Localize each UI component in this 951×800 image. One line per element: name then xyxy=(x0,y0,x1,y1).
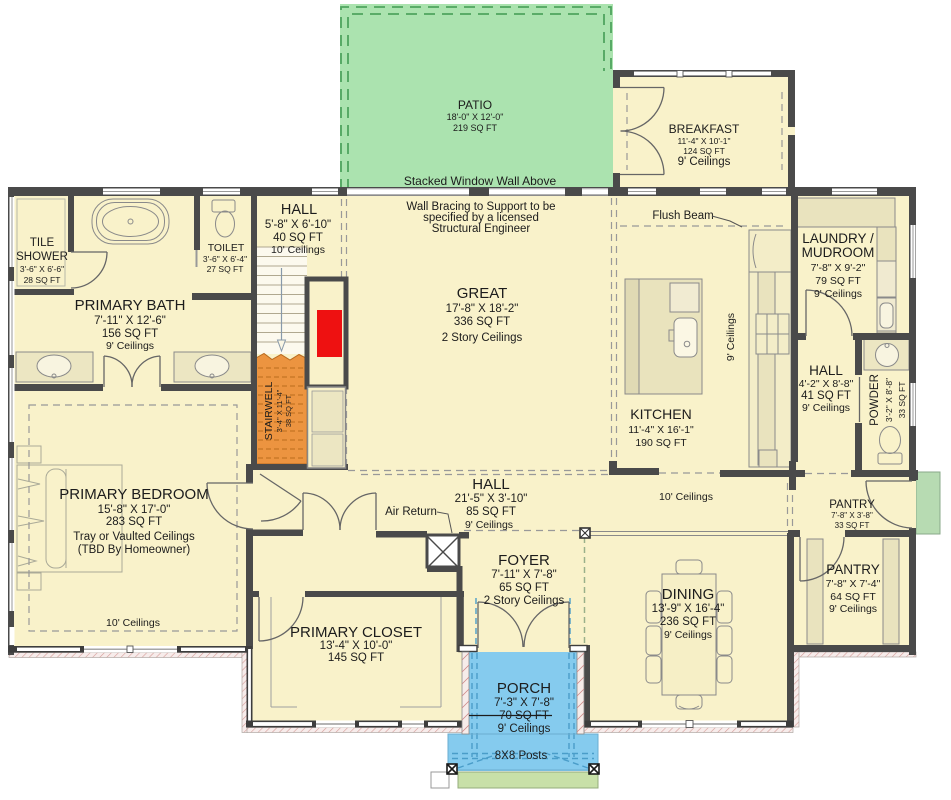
svg-text:HALL: HALL xyxy=(281,202,317,218)
svg-text:4'-2" X 8'-8": 4'-2" X 8'-8" xyxy=(799,378,854,390)
svg-text:KITCHEN: KITCHEN xyxy=(630,406,691,422)
svg-text:7'-3" X 7'-8": 7'-3" X 7'-8" xyxy=(494,697,554,709)
svg-text:21'-5" X 3'-10": 21'-5" X 3'-10" xyxy=(455,493,528,505)
svg-text:65 SQ FT: 65 SQ FT xyxy=(499,582,549,594)
svg-text:190 SQ FT: 190 SQ FT xyxy=(635,437,687,449)
svg-text:HALL: HALL xyxy=(809,363,843,378)
svg-text:DINING: DINING xyxy=(662,586,715,603)
svg-text:7'-8" X 9'-2": 7'-8" X 9'-2" xyxy=(811,262,866,274)
svg-text:3'-6" X 6'-6": 3'-6" X 6'-6" xyxy=(20,264,64,274)
svg-text:SHOWER: SHOWER xyxy=(16,251,68,263)
svg-text:28 SQ FT: 28 SQ FT xyxy=(24,275,61,285)
svg-text:3'-6" X 6'-4": 3'-6" X 6'-4" xyxy=(203,254,247,264)
svg-text:17'-8" X 18'-2": 17'-8" X 18'-2" xyxy=(446,303,519,315)
svg-text:GREAT: GREAT xyxy=(457,285,508,302)
svg-text:3'-4" X 11'-4": 3'-4" X 11'-4" xyxy=(275,389,284,432)
svg-text:POWDER: POWDER xyxy=(869,374,881,426)
svg-text:9' Ceilings: 9' Ceilings xyxy=(814,288,862,300)
svg-text:9' Ceilings: 9' Ceilings xyxy=(465,519,513,531)
svg-text:27 SQ FT: 27 SQ FT xyxy=(207,264,244,274)
svg-text:9' Ceilings: 9' Ceilings xyxy=(829,603,877,615)
svg-text:7'-8" X 7'-4": 7'-8" X 7'-4" xyxy=(826,578,881,590)
svg-text:PRIMARY BEDROOM: PRIMARY BEDROOM xyxy=(59,486,208,503)
svg-text:11'-4" X 16'-1": 11'-4" X 16'-1" xyxy=(628,424,694,436)
svg-text:10' Ceilings: 10' Ceilings xyxy=(271,244,325,256)
svg-text:33 SQ FT: 33 SQ FT xyxy=(835,521,870,530)
svg-text:7'-8" X 3'-8": 7'-8" X 3'-8" xyxy=(831,511,873,520)
svg-text:PANTRY: PANTRY xyxy=(829,499,875,511)
svg-text:40 SQ FT: 40 SQ FT xyxy=(273,232,323,244)
svg-text:PORCH: PORCH xyxy=(497,680,551,697)
svg-text:156 SQ FT: 156 SQ FT xyxy=(102,328,158,340)
svg-text:5'-8" X 6'-10": 5'-8" X 6'-10" xyxy=(265,219,331,231)
svg-text:9' Ceilings: 9' Ceilings xyxy=(725,313,737,361)
svg-text:41 SQ FT: 41 SQ FT xyxy=(801,390,851,402)
svg-text:10' Ceilings: 10' Ceilings xyxy=(106,617,160,629)
svg-text:FOYER: FOYER xyxy=(498,552,550,569)
svg-text:283 SQ FT: 283 SQ FT xyxy=(106,516,162,528)
svg-text:PRIMARY CLOSET: PRIMARY CLOSET xyxy=(290,624,422,641)
svg-text:2 Story Ceilings: 2 Story Ceilings xyxy=(442,332,523,344)
svg-text:MUDROOM: MUDROOM xyxy=(802,245,875,260)
svg-text:9' Ceilings: 9' Ceilings xyxy=(106,340,154,352)
svg-text:LAUNDRY /: LAUNDRY / xyxy=(802,231,874,246)
svg-text:145 SQ FT: 145 SQ FT xyxy=(328,652,384,664)
svg-text:38 SQ FT: 38 SQ FT xyxy=(284,394,293,427)
svg-text:124 SQ FT: 124 SQ FT xyxy=(683,146,725,156)
svg-text:236 SQ FT: 236 SQ FT xyxy=(660,616,716,628)
svg-text:TILE: TILE xyxy=(30,237,55,249)
svg-text:9' Ceilings: 9' Ceilings xyxy=(678,156,731,168)
svg-text:Tray or Vaulted Ceilings: Tray or Vaulted Ceilings xyxy=(73,531,195,543)
svg-text:64 SQ FT: 64 SQ FT xyxy=(830,591,876,603)
svg-text:TOILET: TOILET xyxy=(208,242,245,254)
svg-text:Stacked Window Wall Above: Stacked Window Wall Above xyxy=(404,174,557,188)
svg-text:PANTRY: PANTRY xyxy=(826,562,880,577)
svg-text:10' Ceilings: 10' Ceilings xyxy=(659,491,713,503)
svg-text:7'-11" X 12'-6": 7'-11" X 12'-6" xyxy=(94,315,166,327)
svg-text:9' Ceilings: 9' Ceilings xyxy=(664,629,712,641)
svg-text:Air Return: Air Return xyxy=(385,506,437,518)
svg-text:3'-2" X 8'-8": 3'-2" X 8'-8" xyxy=(884,378,894,422)
svg-text:219 SQ FT: 219 SQ FT xyxy=(453,123,498,133)
svg-text:8X8 Posts: 8X8 Posts xyxy=(495,750,548,762)
svg-text:336 SQ FT: 336 SQ FT xyxy=(454,316,510,328)
svg-text:7'-11" X 7'-8": 7'-11" X 7'-8" xyxy=(491,569,556,581)
svg-text:HALL: HALL xyxy=(472,476,510,493)
svg-text:Flush Beam: Flush Beam xyxy=(652,210,713,222)
svg-text:Structural Engineer: Structural Engineer xyxy=(432,223,531,235)
svg-text:2 Story Ceilings: 2 Story Ceilings xyxy=(484,595,565,607)
svg-text:13'-4" X 10'-0": 13'-4" X 10'-0" xyxy=(320,640,393,652)
svg-text:11'-4" X 10'-1": 11'-4" X 10'-1" xyxy=(677,136,730,146)
svg-text:9' Ceilings: 9' Ceilings xyxy=(498,723,551,735)
svg-text:79 SQ FT: 79 SQ FT xyxy=(815,275,861,287)
svg-text:PRIMARY BATH: PRIMARY BATH xyxy=(75,297,186,314)
svg-text:85 SQ FT: 85 SQ FT xyxy=(466,506,516,518)
svg-text:13'-9" X 16'-4": 13'-9" X 16'-4" xyxy=(652,603,725,615)
svg-text:33 SQ FT: 33 SQ FT xyxy=(897,382,907,419)
svg-text:STAIRWELL: STAIRWELL xyxy=(263,382,275,441)
svg-text:9' Ceilings: 9' Ceilings xyxy=(802,402,850,414)
svg-text:18'-0" X 12'-0": 18'-0" X 12'-0" xyxy=(447,112,504,122)
svg-text:BREAKFAST: BREAKFAST xyxy=(669,122,740,136)
svg-text:(TBD By Homeowner): (TBD By Homeowner) xyxy=(78,544,191,556)
svg-text:15'-8" X 17'-0": 15'-8" X 17'-0" xyxy=(98,504,171,516)
svg-text:PATIO: PATIO xyxy=(458,98,492,112)
